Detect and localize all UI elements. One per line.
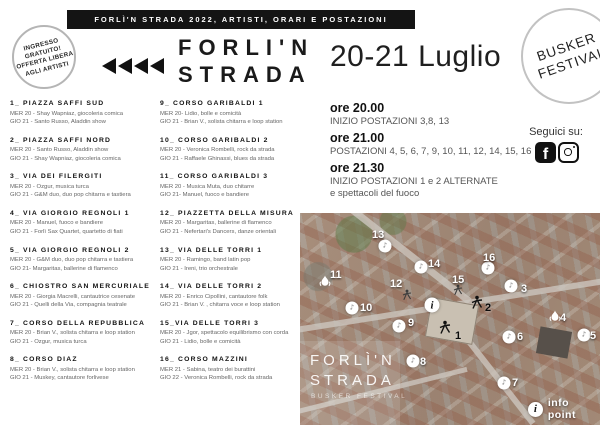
event-date: 20-21 Luglio (330, 40, 501, 74)
artist-glyph-icon: ♪ (350, 305, 354, 312)
top-banner: FORLÌ'N STRADA 2022, ARTISTI, ORARI E PO… (67, 10, 415, 29)
marker-number-label: 11 (330, 270, 342, 281)
location-item: 1_ PIAZZA SAFFI SUDMER 20 - Shay Wapniaz… (10, 100, 158, 127)
map-title-line: FORLÌ'N (310, 351, 396, 371)
location-performance: MER 20 - Santo Russo, Aladdin show (10, 146, 158, 155)
schedule-entry: ore 20.00INIZIO POSTAZIONI 3,8, 13 (330, 101, 598, 127)
logo-line-2: STRADA (178, 61, 314, 88)
artist-spot-marker-icon: ♪ (505, 280, 518, 293)
location-item: 7_ CORSO DELLA REPUBBLICAMER 20 - Brian … (10, 320, 158, 347)
busker-festival-badge-text: BUSKER FESTIVAL (530, 29, 600, 84)
location-item: 6_ CHIOSTRO SAN MERCURIALEMER 20 - Giorg… (10, 283, 158, 310)
location-item: 3_ VIA DEI FILERGITIMER 20 - Ozgur, musi… (10, 173, 158, 200)
marker-number-label: 7 (512, 378, 518, 389)
location-title: 5_ VIA GIORGIO REGNOLI 2 (10, 247, 158, 254)
artist-glyph-icon: ♪ (383, 243, 387, 250)
location-performance: MER 20 - Enrico Cipollini, cantautore fo… (160, 293, 308, 302)
location-performance: MER 20 - Ramingo, band latin pop (160, 256, 308, 265)
marker-number-label: 13 (372, 230, 384, 241)
location-item: 2_ PIAZZA SAFFI NORDMER 20 - Santo Russo… (10, 137, 158, 164)
location-title: 11_ CORSO GARIBALDI 3 (160, 173, 308, 180)
map-overlay-subtitle: BUSKER FESTIVAL (311, 393, 407, 400)
info-icon: i (528, 402, 543, 417)
location-performance: MER 20 - Jgor, spettacolo equilibrismo c… (160, 329, 308, 338)
location-item: 15_VIA DELLE TORRI 3MER 20 - Jgor, spett… (160, 320, 308, 347)
city-map: FORLÌ'N STRADA BUSKER FESTIVAL i info po… (300, 213, 600, 425)
location-performance: GIO 21- Manuel, fuoco e bandiere (160, 191, 308, 200)
location-performance: GIO 21 - Forlì Sax Quartet, quartetto di… (10, 228, 158, 237)
marker-number-label: 14 (428, 259, 440, 270)
schedule-time: ore 21.30 (330, 161, 598, 175)
facebook-letter: f (543, 147, 548, 163)
info-point-label: info point (548, 397, 600, 421)
location-title: 10_ CORSO GARIBALDI 2 (160, 137, 308, 144)
location-item: 8_ CORSO DIAZMER 20 - Brian V., solista … (10, 356, 158, 383)
map-title-line: STRADA (310, 371, 396, 391)
location-item: 9_ CORSO GARIBALDI 1MER 20- Lidio, bolle… (160, 100, 308, 127)
map-overlay-title: FORLÌ'N STRADA (310, 351, 396, 390)
location-item: 10_ CORSO GARIBALDI 2MER 20 - Veronica R… (160, 137, 308, 164)
marker-number-label: 8 (420, 357, 426, 368)
info-point-legend: i info point (528, 397, 600, 421)
locations-column-2: 9_ CORSO GARIBALDI 1MER 20- Lidio, bolle… (160, 100, 308, 393)
info-point-marker-icon: i (425, 298, 440, 313)
location-title: 12_ PIAZZETTA DELLA MISURA (160, 210, 308, 217)
marker-number-label: 15 (452, 275, 464, 286)
location-performance: GIO 22 - Veronica Rombelli, rock da stra… (160, 374, 308, 383)
artist-glyph-icon: ♪ (502, 380, 506, 387)
location-performance: GIO 21 - Muskey, cantautore forlivese (10, 374, 158, 383)
location-performance: MER 20 - Manuel, fuoco e bandiere (10, 219, 158, 228)
location-performance: GIO 21 - Lidio, bolle e comicità (160, 338, 308, 347)
location-title: 7_ CORSO DELLA REPUBBLICA (10, 320, 158, 327)
location-performance: GIO 21 - Quelli della Via, compagnia tea… (10, 301, 158, 310)
busker-festival-badge: BUSKER FESTIVAL (521, 8, 600, 104)
location-performance: MER 20 - Shay Wapniaz, giocoleria comica (10, 110, 158, 119)
artist-spot-marker-icon: ♪ (393, 320, 406, 333)
poster-page: FORLÌ'N STRADA 2022, ARTISTI, ORARI E PO… (0, 0, 600, 425)
location-item: 13_ VIA DELLE TORRI 1MER 20 - Ramingo, b… (160, 247, 308, 274)
marker-number-label: 1 (455, 331, 461, 342)
schedule-detail: e spettacoli del fuoco (330, 188, 598, 199)
artist-spot-marker-icon: ♪ (346, 302, 359, 315)
performer-figure-icon (439, 320, 452, 340)
free-entry-badge-text: INGRESSO GRATUITO! OFFERTA LIBERA AGLI A… (12, 34, 77, 80)
location-performance: MER 20- Lidio, bolle e comicità (160, 110, 308, 119)
instagram-dot-icon (573, 146, 575, 148)
location-item: 14_ VIA DELLE TORRI 2MER 20 - Enrico Cip… (160, 283, 308, 310)
social-label: Seguici su: (520, 126, 592, 138)
location-performance: MER 20 - Brian V., solista chitarra e lo… (10, 366, 158, 375)
location-item: 5_ VIA GIORGIO REGNOLI 2MER 20 - G&M duo… (10, 247, 158, 274)
location-title: 6_ CHIOSTRO SAN MERCURIALE (10, 283, 158, 290)
location-title: 9_ CORSO GARIBALDI 1 (160, 100, 308, 107)
marker-number-label: 10 (360, 303, 372, 314)
marker-number-label: 12 (390, 279, 402, 290)
instagram-icon[interactable] (558, 142, 579, 163)
location-performance: MER 20 - Giorgia Macrelli, cantautrice c… (10, 293, 158, 302)
location-performance: GIO 21 - Nefertari's Dancers, danze orie… (160, 228, 308, 237)
marker-number-label: 9 (408, 318, 414, 329)
logo-arrows-icon (102, 58, 166, 74)
location-performance: MER 20 - Margaritas, ballerine di flamen… (160, 219, 308, 228)
fire-show-marker-icon (550, 311, 561, 330)
location-title: 4_ VIA GIORGIO REGNOLI 1 (10, 210, 158, 217)
artist-glyph-icon: ♪ (397, 323, 401, 330)
location-title: 14_ VIA DELLE TORRI 2 (160, 283, 308, 290)
location-performance: GIO 21 - Santo Russo, Aladdin show (10, 118, 158, 127)
location-performance: GIO 21 - Brian V. , chitarra voce e loop… (160, 301, 308, 310)
location-performance: GIO 21 - Brian V., solista chitarra e lo… (160, 118, 308, 127)
location-item: 12_ PIAZZETTA DELLA MISURAMER 20 - Marga… (160, 210, 308, 237)
artist-glyph-icon: ♪ (486, 265, 490, 272)
marker-number-label: 3 (521, 284, 527, 295)
schedule-time: ore 20.00 (330, 101, 598, 115)
location-performance: MER 21 - Sabina, teatro dei burattini (160, 366, 308, 375)
location-title: 8_ CORSO DIAZ (10, 356, 158, 363)
artist-spot-marker-icon: ♪ (503, 331, 516, 344)
artist-spot-marker-icon: ♪ (407, 355, 420, 368)
location-performance: GIO 21 - Raffaele Ghinassi, blues da str… (160, 155, 308, 164)
artist-glyph-icon: ♪ (582, 332, 586, 339)
left-triangle-icon (118, 58, 132, 74)
artist-glyph-icon: ♪ (419, 264, 423, 271)
marker-number-label: 5 (590, 331, 596, 342)
marker-number-label: 4 (560, 313, 566, 324)
performer-figure-icon (402, 288, 412, 306)
performer-figure-icon (471, 295, 484, 315)
location-performance: GIO 21 - G&M duo, duo pop chitarra e tas… (10, 191, 158, 200)
left-triangle-icon (102, 58, 116, 74)
fire-show-marker-icon (320, 276, 331, 295)
artist-spot-marker-icon: ♪ (498, 377, 511, 390)
location-performance: GIO 21 - Shay Wapniaz, giocoleria comica (10, 155, 158, 164)
schedule-entry: ore 21.30INIZIO POSTAZIONI 1 e 2 ALTERNA… (330, 161, 598, 199)
location-title: 16_ CORSO MAZZINI (160, 356, 308, 363)
artist-spot-marker-icon: ♪ (379, 240, 392, 253)
location-performance: GIO 21 - Ireni, trio orchestrale (160, 265, 308, 274)
location-title: 13_ VIA DELLE TORRI 1 (160, 247, 308, 254)
locations-column-1: 1_ PIAZZA SAFFI SUDMER 20 - Shay Wapniaz… (10, 100, 158, 393)
logo-line-1: FORLI'N (178, 34, 314, 61)
left-triangle-icon (134, 58, 148, 74)
artist-glyph-icon: ♪ (411, 358, 415, 365)
schedule-detail: INIZIO POSTAZIONI 1 e 2 ALTERNATE (330, 176, 598, 187)
location-performance: MER 20 - Musica Muta, duo chitarre (160, 183, 308, 192)
location-performance: MER 20 - Brian V., solista chitarra e lo… (10, 329, 158, 338)
location-item: 16_ CORSO MAZZINIMER 21 - Sabina, teatro… (160, 356, 308, 383)
festival-logo: FORLI'N STRADA (178, 34, 314, 88)
location-title: 15_VIA DELLE TORRI 3 (160, 320, 308, 327)
location-performance: MER 20 - Veronica Rombelli, rock da stra… (160, 146, 308, 155)
free-entry-badge: INGRESSO GRATUITO! OFFERTA LIBERA AGLI A… (12, 25, 76, 89)
instagram-lens-icon (564, 148, 572, 156)
map-building (536, 326, 572, 358)
artist-glyph-icon: ♪ (507, 334, 511, 341)
artist-spot-marker-icon: ♪ (415, 261, 428, 274)
location-title: 2_ PIAZZA SAFFI NORD (10, 137, 158, 144)
artist-spot-marker-icon: ♪ (578, 329, 591, 342)
location-performance: MER 20 - G&M duo, duo pop chitarra e tas… (10, 256, 158, 265)
artist-glyph-icon: ♪ (509, 283, 513, 290)
left-triangle-icon (150, 58, 164, 74)
marker-number-label: 2 (485, 303, 491, 314)
facebook-icon[interactable]: f (535, 142, 556, 163)
location-performance: GIO 21- Margaritas, ballerine di flamenc… (10, 265, 158, 274)
location-title: 3_ VIA DEI FILERGITI (10, 173, 158, 180)
location-performance: MER 20 - Ozgur, musica turca (10, 183, 158, 192)
location-performance: GIO 21 - Ozgur, musica turca (10, 338, 158, 347)
location-title: 1_ PIAZZA SAFFI SUD (10, 100, 158, 107)
location-item: 4_ VIA GIORGIO REGNOLI 1MER 20 - Manuel,… (10, 210, 158, 237)
marker-number-label: 6 (517, 332, 523, 343)
top-banner-text: FORLÌ'N STRADA 2022, ARTISTI, ORARI E PO… (94, 15, 387, 24)
marker-number-label: 16 (483, 253, 495, 264)
location-item: 11_ CORSO GARIBALDI 3MER 20 - Musica Mut… (160, 173, 308, 200)
